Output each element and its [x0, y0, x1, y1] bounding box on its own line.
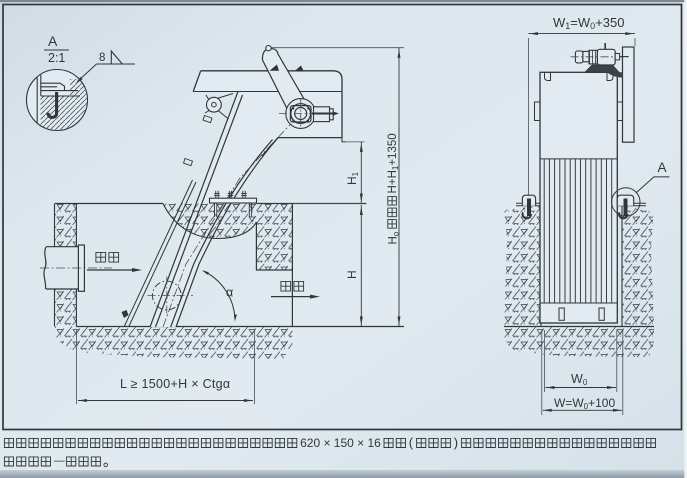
svg-text:W1=W0+350: W1=W0+350	[553, 15, 624, 31]
svg-text:H: H	[345, 270, 359, 279]
svg-text:A: A	[48, 33, 58, 49]
svg-text:L ≥ 1500+H × Ctgα: L ≥ 1500+H × Ctgα	[120, 377, 230, 391]
svg-text:8: 8	[99, 52, 105, 64]
svg-text:α: α	[226, 286, 233, 300]
svg-text:620 × 150 × 16: 620 × 150 × 16	[300, 436, 381, 450]
svg-text:2:1: 2:1	[48, 51, 65, 65]
svg-text:(: (	[409, 435, 414, 450]
svg-text:): )	[454, 435, 458, 450]
svg-text:—: —	[54, 455, 65, 467]
svg-text:H+H1+1350: H+H1+1350	[387, 133, 400, 193]
svg-text:A: A	[658, 160, 667, 175]
